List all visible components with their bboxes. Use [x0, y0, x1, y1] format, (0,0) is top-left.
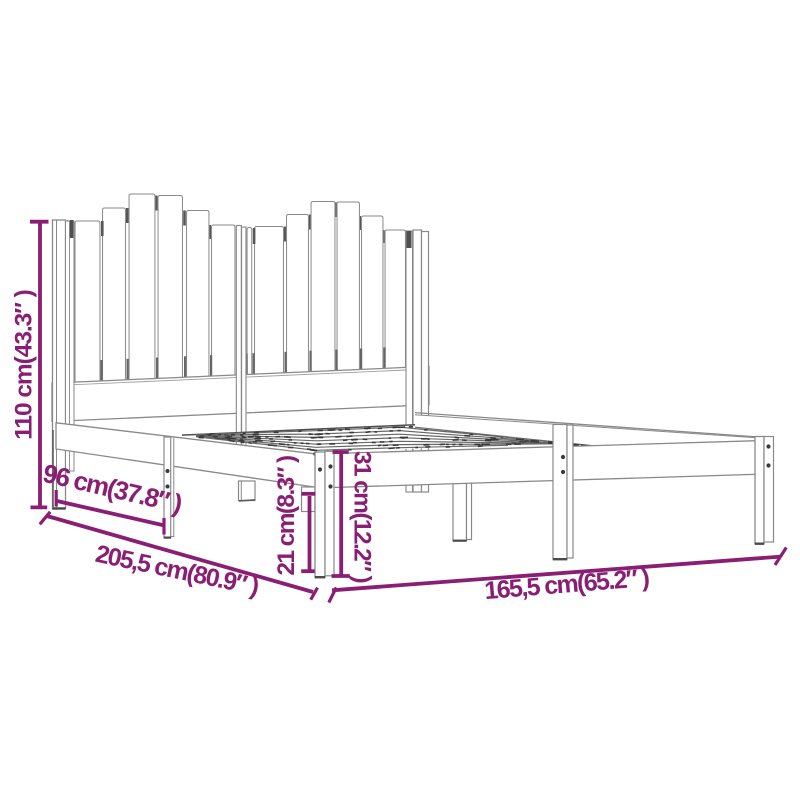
svg-text:165,5 cm(65.2″ ): 165,5 cm(65.2″ ) — [483, 564, 650, 605]
svg-text:31 cm(12.2″ ): 31 cm(12.2″ ) — [349, 451, 376, 583]
svg-text:21 cm(8.3″ ): 21 cm(8.3″ ) — [273, 456, 300, 576]
svg-text:96 cm(37.8″ ): 96 cm(37.8″ ) — [40, 458, 185, 519]
svg-text:110 cm(43.3″ ): 110 cm(43.3″ ) — [11, 290, 38, 440]
svg-text:205,5 cm(80.9″ ): 205,5 cm(80.9″ ) — [93, 540, 262, 601]
